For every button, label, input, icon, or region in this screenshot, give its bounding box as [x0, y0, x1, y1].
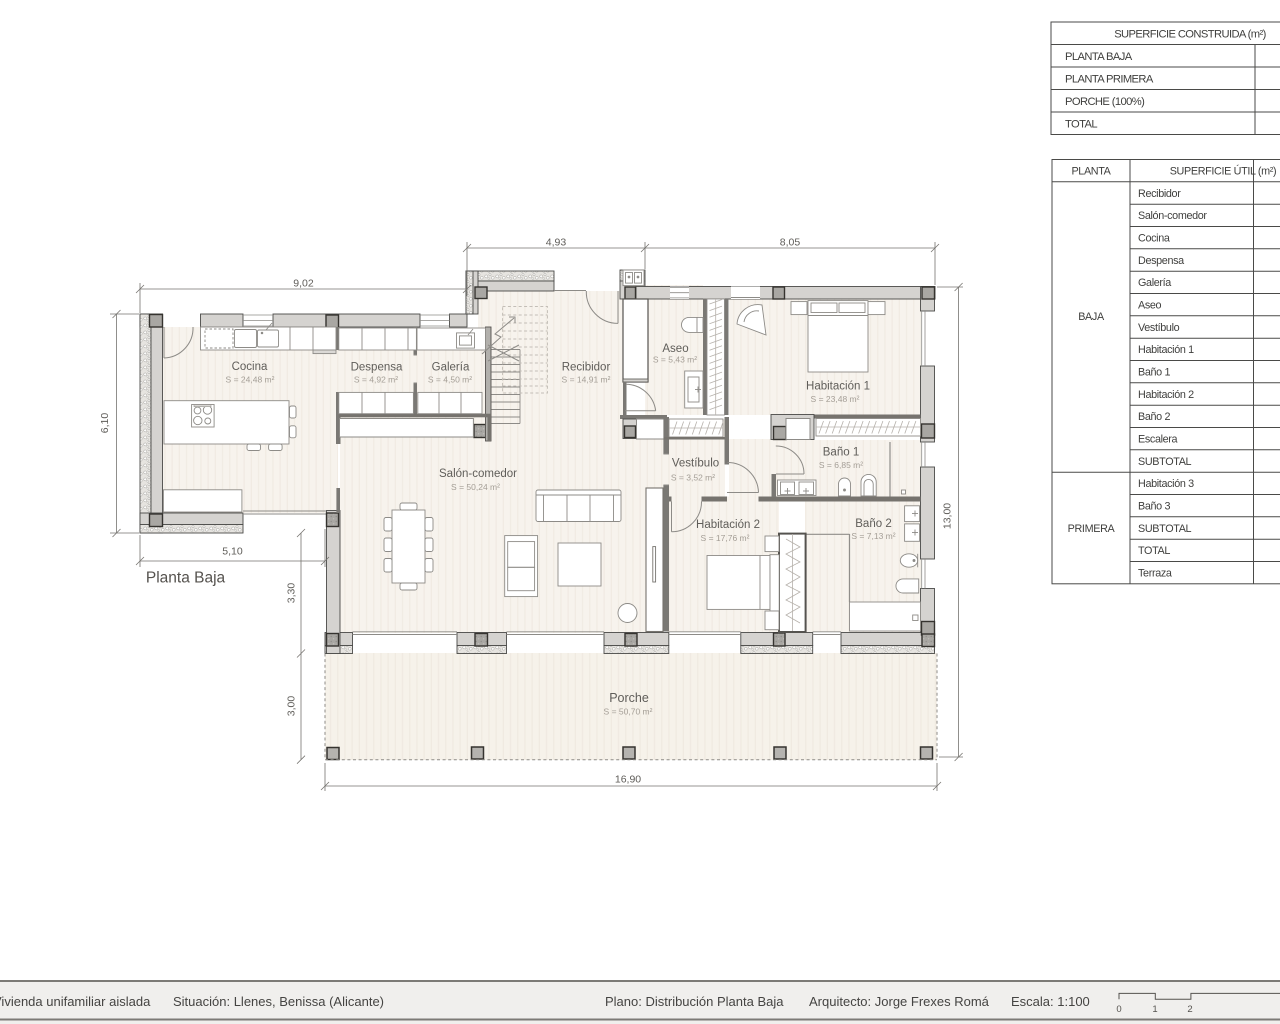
svg-text:Recibidor: Recibidor — [562, 362, 611, 374]
svg-text:Salón-comedor: Salón-comedor — [439, 468, 517, 480]
svg-text:Aseo: Aseo — [662, 343, 688, 355]
svg-text:Cocina: Cocina — [1138, 233, 1170, 245]
svg-text:Baño 2: Baño 2 — [1138, 411, 1170, 423]
svg-text:4,93: 4,93 — [546, 237, 567, 249]
svg-text:13,00: 13,00 — [942, 503, 954, 529]
svg-text:Escalera: Escalera — [1138, 434, 1178, 446]
svg-text:Recibidor: Recibidor — [1138, 188, 1181, 200]
svg-text:S = 4,50 m²: S = 4,50 m² — [428, 375, 472, 385]
svg-text:Vivienda unifamiliar aislada: Vivienda unifamiliar aislada — [0, 994, 151, 1009]
svg-text:Baño 3: Baño 3 — [1138, 501, 1170, 513]
svg-text:Habitación 2: Habitación 2 — [696, 519, 760, 531]
svg-text:Vestíbulo: Vestíbulo — [1138, 322, 1180, 334]
svg-text:Baño 1: Baño 1 — [823, 447, 859, 459]
svg-text:Habitación 3: Habitación 3 — [1138, 478, 1194, 490]
svg-text:Cocina: Cocina — [232, 361, 268, 373]
svg-text:16,90: 16,90 — [615, 774, 641, 786]
svg-text:S = 6,85 m²: S = 6,85 m² — [819, 460, 863, 470]
svg-text:SUBTOTAL: SUBTOTAL — [1138, 456, 1192, 468]
svg-text:TOTAL: TOTAL — [1138, 545, 1170, 557]
svg-text:Baño 1: Baño 1 — [1138, 367, 1170, 379]
svg-text:Despensa: Despensa — [351, 362, 403, 374]
svg-text:Salón-comedor: Salón-comedor — [1138, 210, 1207, 222]
svg-text:Galería: Galería — [1138, 277, 1171, 289]
svg-text:S = 23,48 m²: S = 23,48 m² — [811, 394, 860, 404]
svg-text:S = 5,43 m²: S = 5,43 m² — [653, 355, 697, 365]
svg-text:PLANTA: PLANTA — [1071, 166, 1111, 178]
svg-text:Plano: Distribución Planta Ba: Plano: Distribución Planta Baja — [605, 994, 784, 1009]
svg-text:2: 2 — [1187, 1004, 1192, 1015]
svg-text:PLANTA PRIMERA: PLANTA PRIMERA — [1065, 74, 1154, 86]
svg-text:3,00: 3,00 — [286, 696, 298, 717]
svg-text:TOTAL: TOTAL — [1065, 119, 1097, 131]
svg-text:Vestíbulo: Vestíbulo — [672, 458, 719, 470]
svg-text:S = 17,76 m²: S = 17,76 m² — [701, 533, 750, 543]
svg-text:S = 7,13 m²: S = 7,13 m² — [851, 531, 895, 541]
svg-text:Habitación 1: Habitación 1 — [1138, 344, 1194, 356]
svg-text:Despensa: Despensa — [1138, 255, 1184, 267]
svg-text:1: 1 — [1152, 1004, 1157, 1015]
svg-text:Escala: 1:100: Escala: 1:100 — [1011, 994, 1090, 1009]
svg-text:Situación: Llenes, Benissa (A: Situación: Llenes, Benissa (Alicante) — [173, 994, 384, 1009]
svg-text:6,10: 6,10 — [99, 413, 111, 434]
svg-text:PRIMERA: PRIMERA — [1068, 523, 1116, 535]
svg-text:5,10: 5,10 — [222, 546, 243, 558]
svg-text:Habitación 2: Habitación 2 — [1138, 389, 1194, 401]
svg-text:Galería: Galería — [432, 362, 470, 374]
svg-text:0: 0 — [1116, 1004, 1121, 1015]
svg-text:SUPERFICIE ÚTIL (m²): SUPERFICIE ÚTIL (m²) — [1170, 165, 1277, 178]
svg-text:S = 24,48 m²: S = 24,48 m² — [226, 375, 275, 385]
svg-text:8,05: 8,05 — [780, 237, 801, 249]
svg-text:S = 50,24 m²: S = 50,24 m² — [451, 482, 500, 492]
svg-text:Aseo: Aseo — [1138, 300, 1162, 312]
svg-text:3,30: 3,30 — [286, 583, 298, 604]
svg-text:9,02: 9,02 — [293, 278, 314, 290]
svg-text:PORCHE (100%): PORCHE (100%) — [1065, 96, 1145, 108]
svg-text:Terraza: Terraza — [1138, 568, 1172, 580]
svg-text:Planta Baja: Planta Baja — [146, 570, 226, 587]
svg-text:SUPERFICIE CONSTRUIDA (m²): SUPERFICIE CONSTRUIDA (m²) — [1114, 29, 1266, 41]
svg-text:Baño 2: Baño 2 — [855, 518, 891, 530]
svg-text:SUBTOTAL: SUBTOTAL — [1138, 523, 1192, 535]
svg-text:PLANTA BAJA: PLANTA BAJA — [1065, 51, 1133, 63]
svg-text:Porche: Porche — [609, 691, 649, 705]
svg-text:S = 3,52 m²: S = 3,52 m² — [671, 473, 715, 483]
svg-text:Habitación 1: Habitación 1 — [806, 381, 870, 393]
svg-text:S = 50,70 m²: S = 50,70 m² — [604, 706, 653, 716]
svg-text:BAJA: BAJA — [1078, 311, 1105, 323]
svg-text:Arquitecto: Jorge Frexes Romá: Arquitecto: Jorge Frexes Romá — [809, 994, 990, 1009]
svg-text:S = 14,91 m²: S = 14,91 m² — [562, 375, 611, 385]
svg-text:S = 4,92 m²: S = 4,92 m² — [354, 375, 398, 385]
